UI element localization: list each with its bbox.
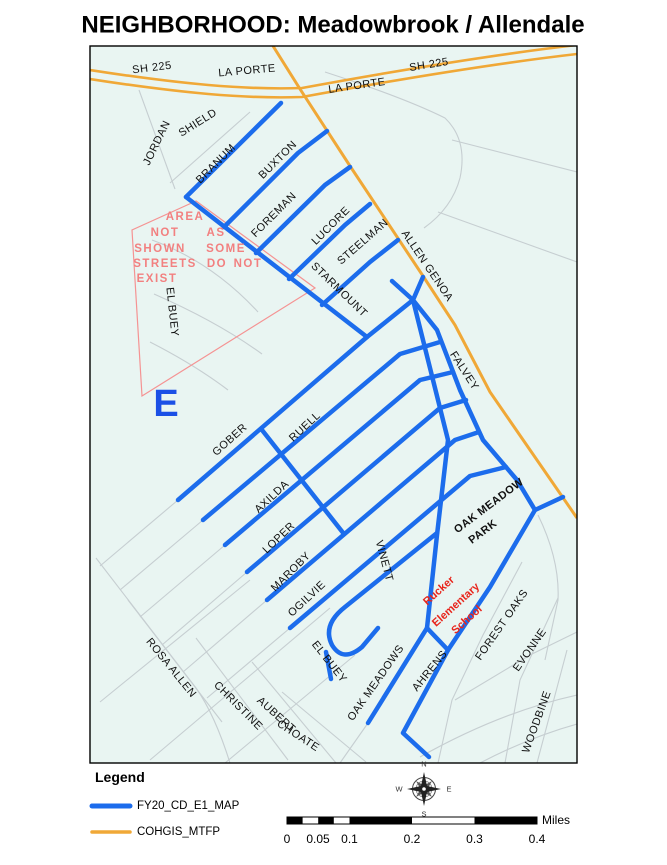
map-label-some: SOME xyxy=(206,243,246,255)
scale-unit-label: Miles xyxy=(542,813,570,827)
scale-tick-0.05: 0.05 xyxy=(306,832,330,846)
map-frame: SH 225LA PORTELA PORTESH 225JORDANSHIELD… xyxy=(90,45,577,763)
scale-tick-0.1: 0.1 xyxy=(341,832,358,846)
map-label-area: AREA xyxy=(166,211,205,223)
compass-letter-w: W xyxy=(395,785,403,794)
legend-heading: Legend xyxy=(95,769,145,785)
map-label-streets: STREETS xyxy=(133,258,197,270)
compass-letter-n: N xyxy=(421,760,426,769)
map-label-exist: EXIST xyxy=(137,273,178,285)
scale-tick-0.3: 0.3 xyxy=(466,832,483,846)
scale-tick-0.4: 0.4 xyxy=(529,832,546,846)
map-label-shown: SHOWN xyxy=(134,243,186,255)
compass-letter-e: E xyxy=(446,785,451,794)
map-label-not: NOT xyxy=(151,227,180,239)
map-label-not: NOT xyxy=(234,258,263,270)
map-label-as: AS xyxy=(207,227,226,239)
map-label-e: E xyxy=(153,383,178,425)
map-document: NEIGHBORHOOD: Meadowbrook / Allendale xyxy=(0,0,667,865)
scale-tick-0.2: 0.2 xyxy=(404,832,421,846)
scale-tick-0: 0 xyxy=(284,832,291,846)
page-title: NEIGHBORHOOD: Meadowbrook / Allendale xyxy=(81,12,584,39)
map-label-do: DO xyxy=(207,258,227,270)
legend-item-label: FY20_CD_E1_MAP xyxy=(137,800,240,812)
legend-item-label: COHGIS_MTFP xyxy=(137,826,220,838)
